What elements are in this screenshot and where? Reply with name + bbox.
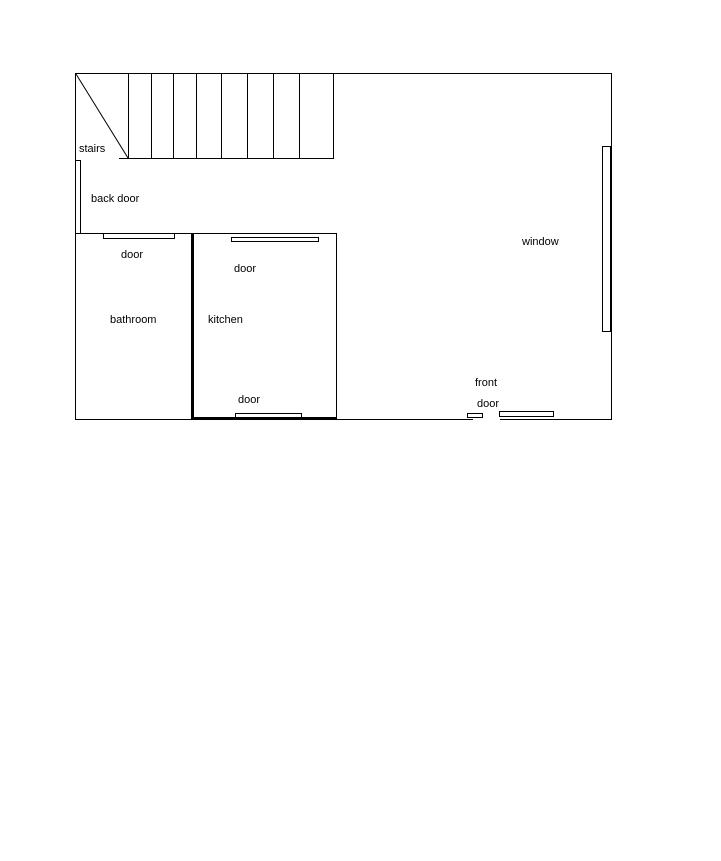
kitchen-bottom-door-label: door bbox=[238, 394, 260, 407]
kitchen-bottom-door-marker bbox=[235, 413, 302, 418]
kitchen-top-door-label: door bbox=[234, 263, 256, 276]
front-door-stub-marker bbox=[467, 413, 483, 418]
stair-tread-line bbox=[273, 73, 274, 158]
stairs-bottom-line bbox=[119, 158, 334, 159]
stairs-label: stairs bbox=[79, 143, 105, 156]
outer-wall-right bbox=[611, 73, 612, 420]
front-door-panel-marker bbox=[499, 411, 554, 417]
stair-tread-line bbox=[333, 73, 334, 158]
stair-tread-line bbox=[299, 73, 300, 158]
kitchen-label: kitchen bbox=[208, 314, 243, 327]
front-door-label-line2: door bbox=[477, 398, 499, 411]
stair-tread-line bbox=[196, 73, 197, 158]
window-label: window bbox=[522, 236, 559, 249]
back-door-label: back door bbox=[91, 193, 139, 206]
stair-tread-line bbox=[173, 73, 174, 158]
window-marker bbox=[602, 146, 611, 332]
bathroom-kitchen-wall bbox=[191, 233, 194, 420]
stair-tread-line bbox=[247, 73, 248, 158]
bathroom-door-label: door bbox=[121, 249, 143, 262]
kitchen-top-door-marker bbox=[231, 237, 319, 242]
floorplan-canvas: stairs back door door bathroom kitchen d… bbox=[0, 0, 721, 861]
outer-wall-bottom-right-segment bbox=[500, 419, 612, 420]
bathroom-label: bathroom bbox=[110, 314, 156, 327]
stair-tread-line bbox=[128, 73, 129, 158]
bathroom-door-marker bbox=[103, 233, 175, 239]
stair-tread-line bbox=[151, 73, 152, 158]
stair-tread-line bbox=[221, 73, 222, 158]
front-door-label-line1: front bbox=[475, 377, 497, 390]
outer-wall-top bbox=[75, 73, 612, 74]
back-door-marker bbox=[75, 160, 81, 234]
kitchen-right-wall bbox=[336, 233, 337, 420]
